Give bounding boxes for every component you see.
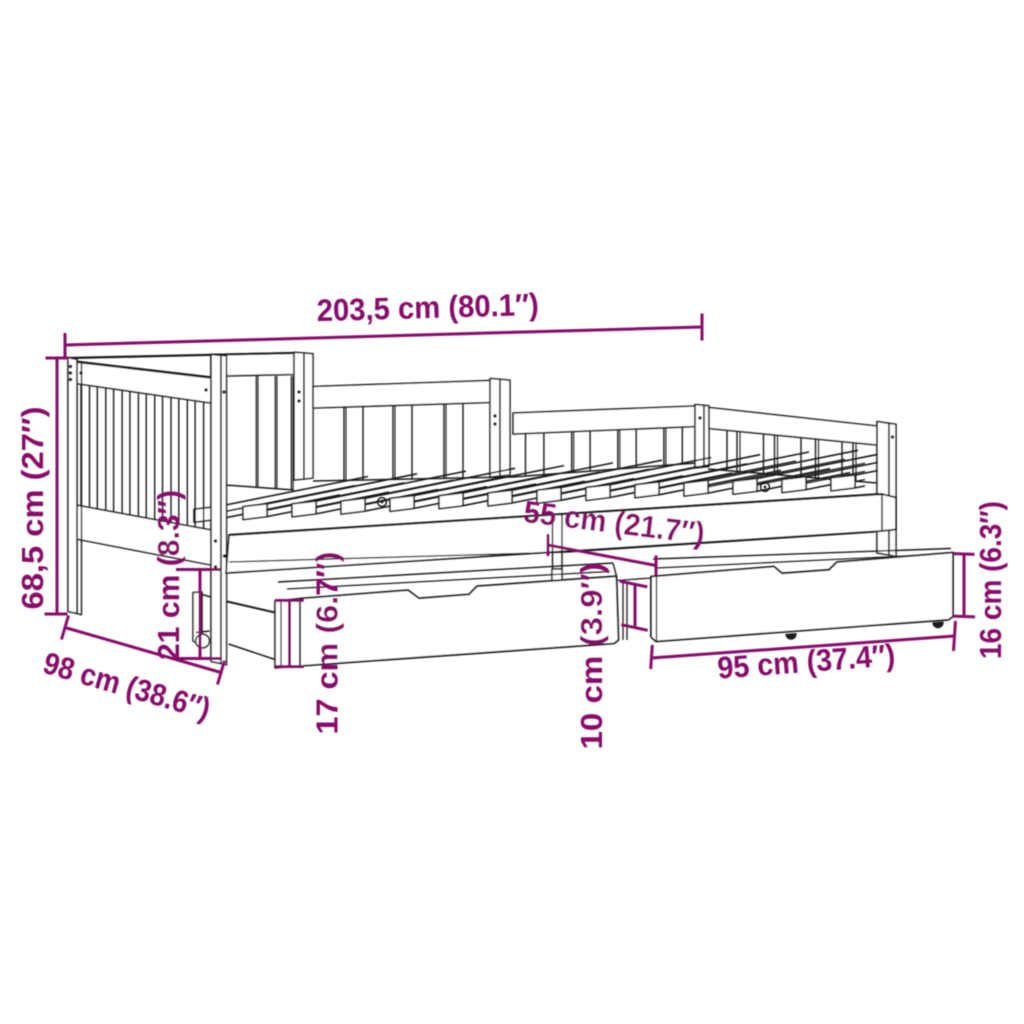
- svg-text:17 cm (6.7″): 17 cm (6.7″): [310, 552, 345, 735]
- svg-text:16 cm (6.3″): 16 cm (6.3″): [973, 501, 1008, 659]
- svg-text:21 cm (8.3″): 21 cm (8.3″): [151, 490, 186, 660]
- svg-text:203,5 cm (80.1″): 203,5 cm (80.1″): [316, 287, 539, 328]
- svg-text:68,5 cm (27″): 68,5 cm (27″): [15, 407, 50, 610]
- svg-text:10 cm (3.9″): 10 cm (3.9″): [574, 563, 609, 750]
